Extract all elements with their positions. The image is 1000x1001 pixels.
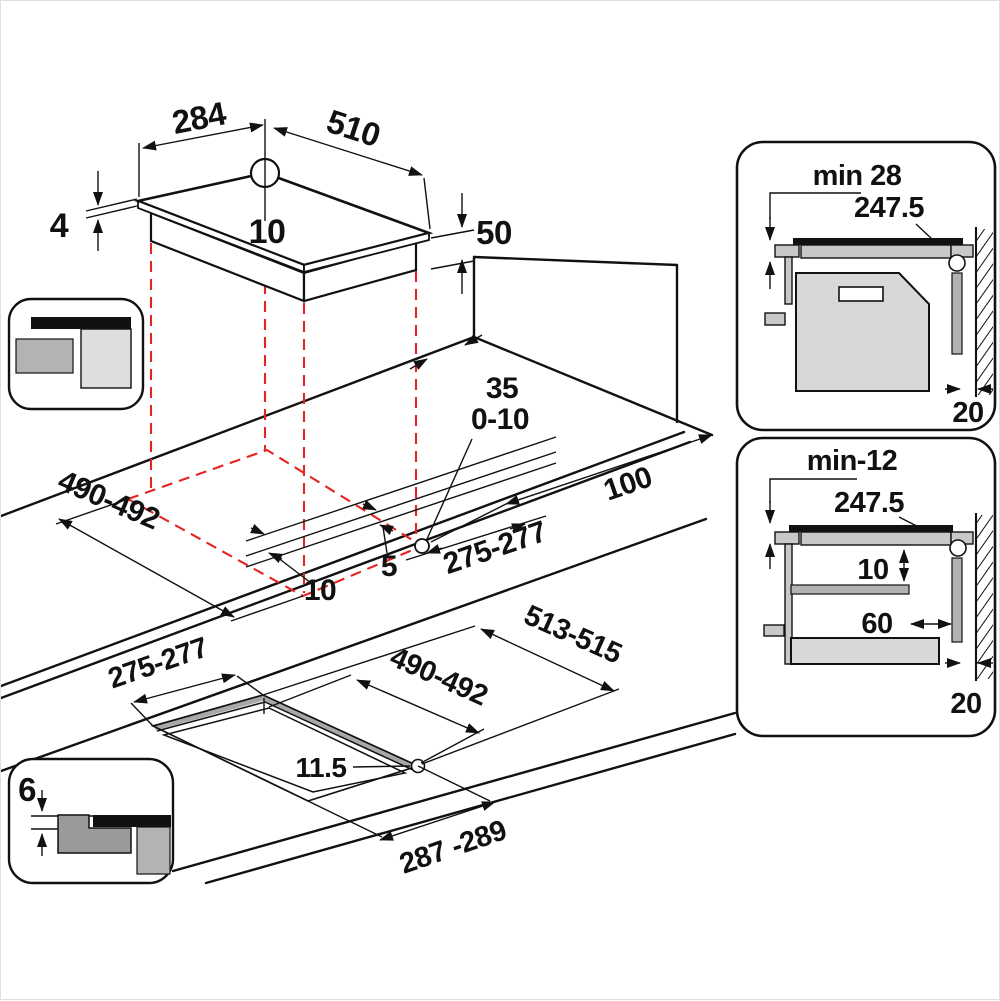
dim-label-rear-clearance: 35 <box>486 372 518 405</box>
oven-hob-body <box>801 245 951 258</box>
dim-rear-clearance: 35 <box>410 335 518 405</box>
inset1-worktop-bar <box>31 317 131 329</box>
detail-bottom-shelf-clearance-label: 60 <box>861 608 892 640</box>
detail-top-wall-gap-label: 20 <box>952 397 983 429</box>
inset1-hob-body <box>16 339 73 373</box>
dim-label-edge-gap: 10 <box>304 574 336 607</box>
dim-label-hob-depth: 284 <box>169 94 230 141</box>
oven-wall-hatch <box>977 229 993 395</box>
oven-cabinet-tab <box>765 313 785 325</box>
diagram-canvas: 490-492 10 5 275-277 35 <box>1 1 1000 1001</box>
dim-label-hole-tolerance: 0-10 <box>471 403 529 436</box>
installation-diagram: 490-492 10 5 275-277 35 <box>0 0 1000 1000</box>
dim-label-flush-length: 490-492 <box>385 641 492 712</box>
oven-glass-edge-circle <box>949 255 965 271</box>
oven-cabinet-side <box>785 257 792 304</box>
dim-label-recess-depth: 6 <box>18 771 36 808</box>
oven-worktop-left <box>775 245 799 257</box>
detail-bottom-title: min-12 <box>807 445 897 477</box>
dim-cutout-length: 490-492 <box>53 464 303 621</box>
detail-bottom-wall-gap-label: 20 <box>950 688 981 720</box>
shelf-board <box>791 585 909 594</box>
oven-rear-spacer <box>952 273 962 354</box>
detail-top-diagonal-label: 247.5 <box>854 192 924 224</box>
dim-label-ledge: 11.5 <box>296 752 347 783</box>
detail-top-title: min 28 <box>813 160 902 192</box>
shelf-rear-spacer <box>952 558 962 642</box>
shelf-hob-glass <box>789 525 953 532</box>
shelf-hob-body <box>801 532 951 545</box>
dim-label-right-clearance: 100 <box>600 461 657 508</box>
dim-label-outer-length: 513-515 <box>519 599 626 670</box>
dim-label-bracket-gap: 5 <box>381 550 397 583</box>
oven-vent <box>839 287 883 301</box>
dim-right-clearance: 100 <box>431 435 712 542</box>
inset2-worktop-bar <box>93 815 171 827</box>
dim-label-cutout-width-top: 275-277 <box>439 515 551 581</box>
dim-label-glass-thickness: 4 <box>50 207 69 245</box>
shelf-wall-hatch <box>977 515 993 679</box>
dim-label-body-depth: 50 <box>476 214 512 251</box>
shelf-drawer <box>791 638 939 664</box>
shelf-glass-edge-circle <box>950 540 966 556</box>
oven-hob-glass <box>793 238 963 245</box>
inset-surface-mounting <box>9 299 143 409</box>
flush-front-edge-inner <box>206 734 735 883</box>
dim-body-depth: 50 <box>431 193 512 294</box>
hob-isometric: 10 284 510 4 50 <box>50 94 512 301</box>
inset2-cabinet <box>137 827 170 874</box>
flush-cutout <box>153 695 425 801</box>
dim-flush-width: 275-277 <box>104 632 263 726</box>
detail-panel-shelf: min-12 247.5 10 60 20 <box>737 438 995 736</box>
detail-panel-oven: min 28 247.5 20 <box>737 142 995 430</box>
shelf-worktop-left <box>775 532 799 544</box>
dim-bracket-gap: 5 <box>363 504 397 583</box>
shelf-cabinet-tab <box>764 625 784 636</box>
detail-bottom-diagonal-label: 247.5 <box>834 487 904 519</box>
detail-bottom-vent-gap-label: 10 <box>857 554 888 586</box>
inset1-cabinet <box>81 329 131 388</box>
cutout-corner-hole <box>415 539 429 553</box>
dim-label-rear-offset: 10 <box>249 213 286 251</box>
dim-glass-thickness: 4 <box>50 171 137 251</box>
dim-flush-length: 490-492 <box>269 641 492 763</box>
inset-flush-mounting: 6 <box>9 759 173 883</box>
